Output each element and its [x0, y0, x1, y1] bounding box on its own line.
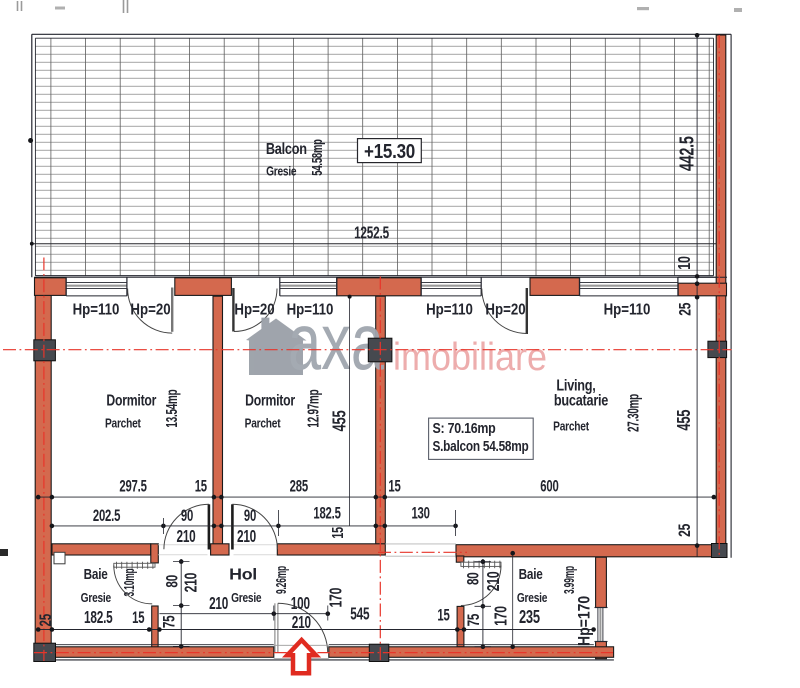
- svg-text:27.30mp: 27.30mp: [624, 394, 642, 432]
- svg-text:455: 455: [330, 410, 350, 431]
- svg-text:Gresie: Gresie: [81, 591, 112, 605]
- svg-text:Hp=110: Hp=110: [426, 301, 473, 318]
- svg-text:235: 235: [519, 608, 540, 628]
- svg-text:80: 80: [163, 575, 182, 588]
- svg-text:90: 90: [244, 507, 256, 526]
- svg-text:600: 600: [540, 477, 558, 496]
- svg-text:Gresie: Gresie: [517, 591, 548, 605]
- svg-text:Parchet: Parchet: [105, 416, 141, 430]
- svg-text:182.5: 182.5: [313, 504, 341, 523]
- svg-text:170: 170: [491, 606, 511, 626]
- svg-text:1252.5: 1252.5: [354, 223, 389, 243]
- svg-text:210: 210: [237, 527, 256, 547]
- svg-text:Gresie: Gresie: [231, 591, 262, 605]
- svg-text:Hp=170: Hp=170: [575, 596, 593, 646]
- svg-text:bucatarie: bucatarie: [554, 392, 609, 409]
- svg-text:75: 75: [161, 615, 180, 628]
- svg-text:297.5: 297.5: [119, 477, 147, 496]
- svg-text:15: 15: [388, 477, 400, 496]
- svg-text:10: 10: [675, 256, 695, 269]
- svg-text:210: 210: [292, 613, 311, 633]
- svg-text:Hp=110: Hp=110: [604, 301, 651, 318]
- svg-text:182.5: 182.5: [84, 608, 112, 628]
- svg-text:3.99mp: 3.99mp: [562, 566, 578, 594]
- svg-text:Hp=20: Hp=20: [485, 301, 525, 318]
- svg-text:25: 25: [37, 614, 56, 627]
- svg-text:210: 210: [484, 572, 504, 592]
- svg-text:455: 455: [675, 409, 695, 430]
- svg-text:Dormitor: Dormitor: [106, 391, 156, 409]
- svg-text:Baie: Baie: [519, 566, 543, 583]
- svg-text:Parchet: Parchet: [245, 416, 281, 430]
- svg-text:15: 15: [132, 609, 144, 628]
- svg-text:285: 285: [290, 477, 308, 496]
- svg-text:210: 210: [209, 594, 228, 614]
- svg-text:15: 15: [195, 477, 207, 496]
- svg-text:Hp=110: Hp=110: [287, 301, 334, 318]
- svg-text:80: 80: [465, 572, 484, 585]
- svg-text:Hp=20: Hp=20: [130, 301, 170, 318]
- svg-text:+15.30: +15.30: [364, 140, 415, 163]
- svg-text:9.26mp: 9.26mp: [274, 566, 290, 594]
- svg-text:3.10mp: 3.10mp: [122, 568, 138, 596]
- svg-text:210: 210: [176, 527, 195, 547]
- svg-text:15: 15: [437, 606, 449, 625]
- svg-text:90: 90: [181, 507, 193, 526]
- svg-text:Hp=110: Hp=110: [73, 301, 120, 318]
- svg-text:100: 100: [291, 594, 310, 614]
- svg-text:Hol: Hol: [229, 566, 257, 584]
- svg-text:Baie: Baie: [84, 566, 108, 583]
- svg-text:13.54mp: 13.54mp: [163, 389, 181, 427]
- svg-text:210: 210: [181, 573, 201, 593]
- svg-text:170: 170: [326, 588, 346, 608]
- svg-text:15: 15: [329, 526, 346, 538]
- svg-text:130: 130: [411, 504, 429, 523]
- svg-text:S.balcon 54.58mp: S.balcon 54.58mp: [433, 438, 529, 455]
- svg-text:54.58mp: 54.58mp: [309, 139, 326, 176]
- svg-text:imobiliare: imobiliare: [393, 336, 547, 379]
- svg-text:S: 70.16mp: S: 70.16mp: [433, 420, 496, 437]
- svg-text:Balcon: Balcon: [266, 141, 307, 159]
- svg-text:Dormitor: Dormitor: [245, 391, 295, 409]
- svg-text:Gresie: Gresie: [266, 164, 297, 178]
- svg-text:442.5: 442.5: [675, 136, 698, 171]
- svg-text:545: 545: [350, 604, 369, 624]
- svg-text:12.97mp: 12.97mp: [304, 389, 322, 427]
- svg-text:Parchet: Parchet: [553, 419, 589, 433]
- svg-text:Hp=20: Hp=20: [234, 301, 274, 318]
- svg-text:202.5: 202.5: [93, 507, 121, 526]
- svg-text:25: 25: [677, 303, 695, 316]
- svg-text:75: 75: [465, 614, 484, 627]
- svg-text:25: 25: [676, 524, 694, 537]
